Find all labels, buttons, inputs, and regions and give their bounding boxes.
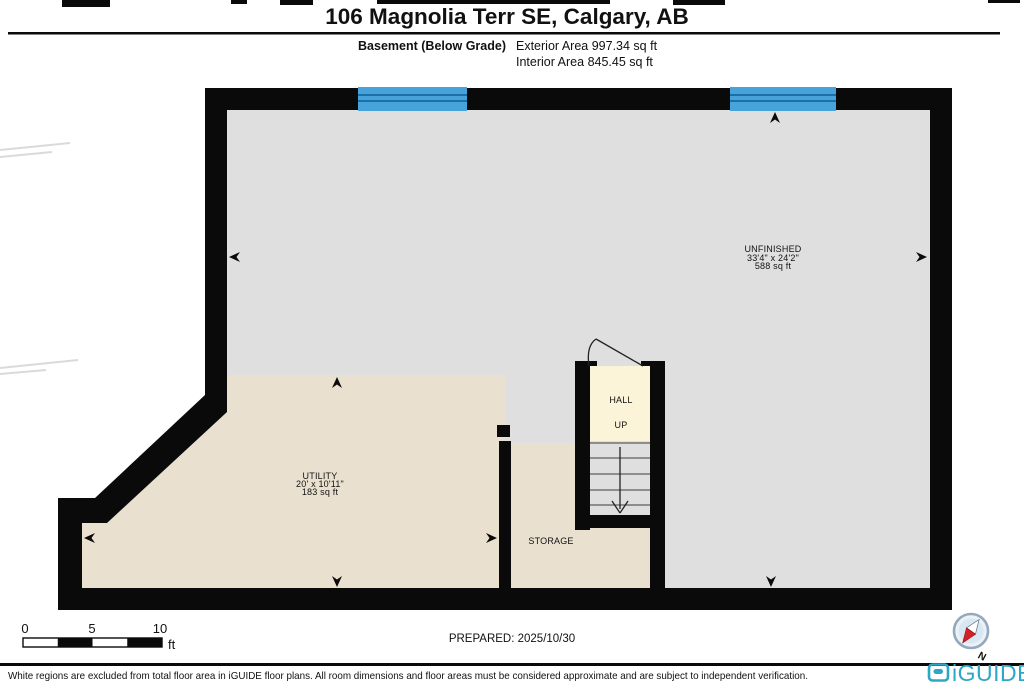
title-divider bbox=[8, 32, 1000, 35]
prepared-date: PREPARED: 2025/10/30 bbox=[449, 633, 575, 645]
staircase bbox=[590, 441, 650, 515]
iguide-logo-icon-slit bbox=[934, 669, 944, 674]
floor-label: Basement (Below Grade) bbox=[358, 39, 506, 53]
floor-plan-canvas: 106 Magnolia Terr SE, Calgary, AB Baseme… bbox=[0, 0, 1024, 682]
iguide-logo-text: iGUIDE bbox=[952, 660, 1024, 682]
room-area-utility: 183 sq ft bbox=[302, 487, 339, 497]
scale-tick-10: 10 bbox=[153, 621, 167, 636]
footer-divider bbox=[0, 663, 1024, 666]
floor-plan-page: 106 Magnolia Terr SE, Calgary, AB Baseme… bbox=[0, 0, 1024, 682]
room-label-hall: HALL bbox=[609, 395, 632, 405]
compass-icon: N bbox=[954, 614, 988, 664]
window-icon bbox=[358, 87, 467, 111]
scale-tick-0: 0 bbox=[21, 621, 28, 636]
scale-unit-label: ft bbox=[168, 637, 176, 652]
print-artifact bbox=[0, 143, 78, 374]
stairs-up-label: UP bbox=[615, 420, 628, 430]
disclaimer-text: White regions are excluded from total fl… bbox=[8, 671, 808, 682]
scale-tick-5: 5 bbox=[88, 621, 95, 636]
scale-bar: 0 5 10 ft bbox=[21, 621, 175, 652]
exterior-area-label: Exterior Area 997.34 sq ft bbox=[516, 39, 658, 53]
room-label-storage: STORAGE bbox=[528, 536, 573, 546]
room-area-unfinished: 588 sq ft bbox=[755, 261, 792, 271]
interior-area-label: Interior Area 845.45 sq ft bbox=[516, 55, 653, 69]
page-title: 106 Magnolia Terr SE, Calgary, AB bbox=[325, 4, 688, 29]
iguide-logo: iGUIDE bbox=[929, 660, 1024, 682]
window-icon bbox=[730, 87, 836, 111]
